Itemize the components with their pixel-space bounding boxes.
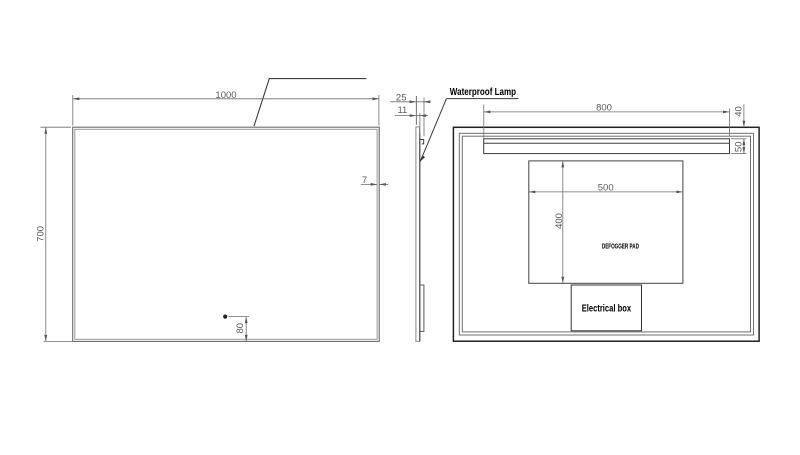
svg-text:50: 50 xyxy=(733,142,744,153)
svg-text:7: 7 xyxy=(362,175,367,186)
svg-text:11: 11 xyxy=(397,105,407,116)
svg-text:500: 500 xyxy=(598,183,614,194)
svg-text:800: 800 xyxy=(596,103,612,114)
svg-text:Electrical box: Electrical box xyxy=(582,303,632,314)
svg-text:1000: 1000 xyxy=(215,90,236,101)
svg-text:700: 700 xyxy=(36,226,47,242)
svg-text:400: 400 xyxy=(554,213,565,229)
svg-text:80: 80 xyxy=(235,323,246,334)
svg-text:40: 40 xyxy=(733,106,744,117)
svg-text:Waterproof Lamp: Waterproof Lamp xyxy=(450,87,516,98)
svg-text:25: 25 xyxy=(396,93,407,104)
svg-text:DEFOGGER PAD: DEFOGGER PAD xyxy=(602,244,639,251)
